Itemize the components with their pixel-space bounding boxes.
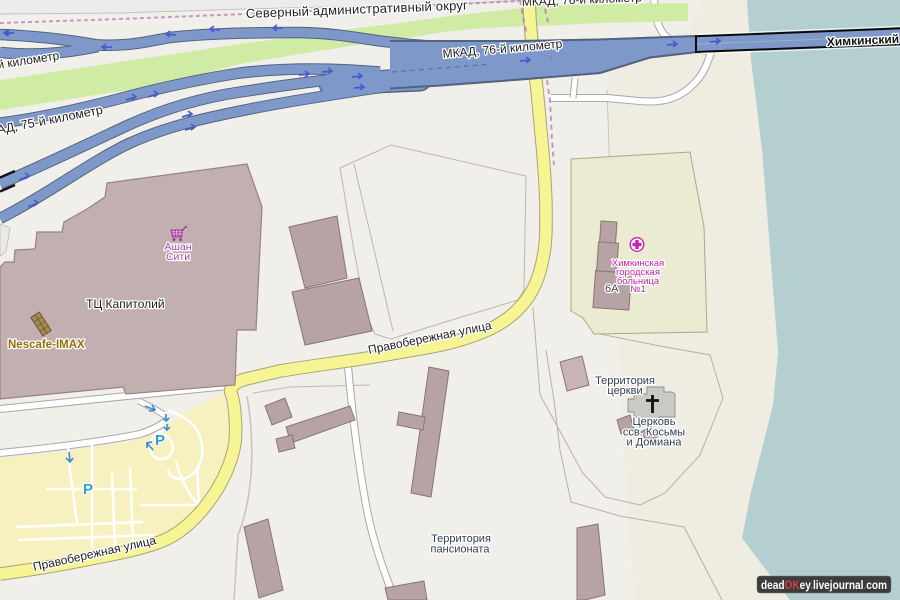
- svg-text:Nescafe-IMAX: Nescafe-IMAX: [8, 339, 85, 351]
- svg-text:пансионата: пансионата: [431, 544, 491, 556]
- svg-text:Сити: Сити: [166, 251, 190, 263]
- svg-text:P: P: [83, 481, 93, 498]
- svg-text:P: P: [155, 432, 165, 449]
- svg-text:ТЦ Капитолий: ТЦ Капитолий: [86, 297, 165, 311]
- svg-text:церкви: церкви: [607, 385, 642, 397]
- svg-text:№1: №1: [630, 284, 645, 295]
- svg-text:6А: 6А: [605, 283, 619, 295]
- svg-text:и Домиана: и Домиана: [627, 437, 683, 449]
- svg-text:deadOKey.livejournal.com: deadOKey.livejournal.com: [761, 578, 887, 592]
